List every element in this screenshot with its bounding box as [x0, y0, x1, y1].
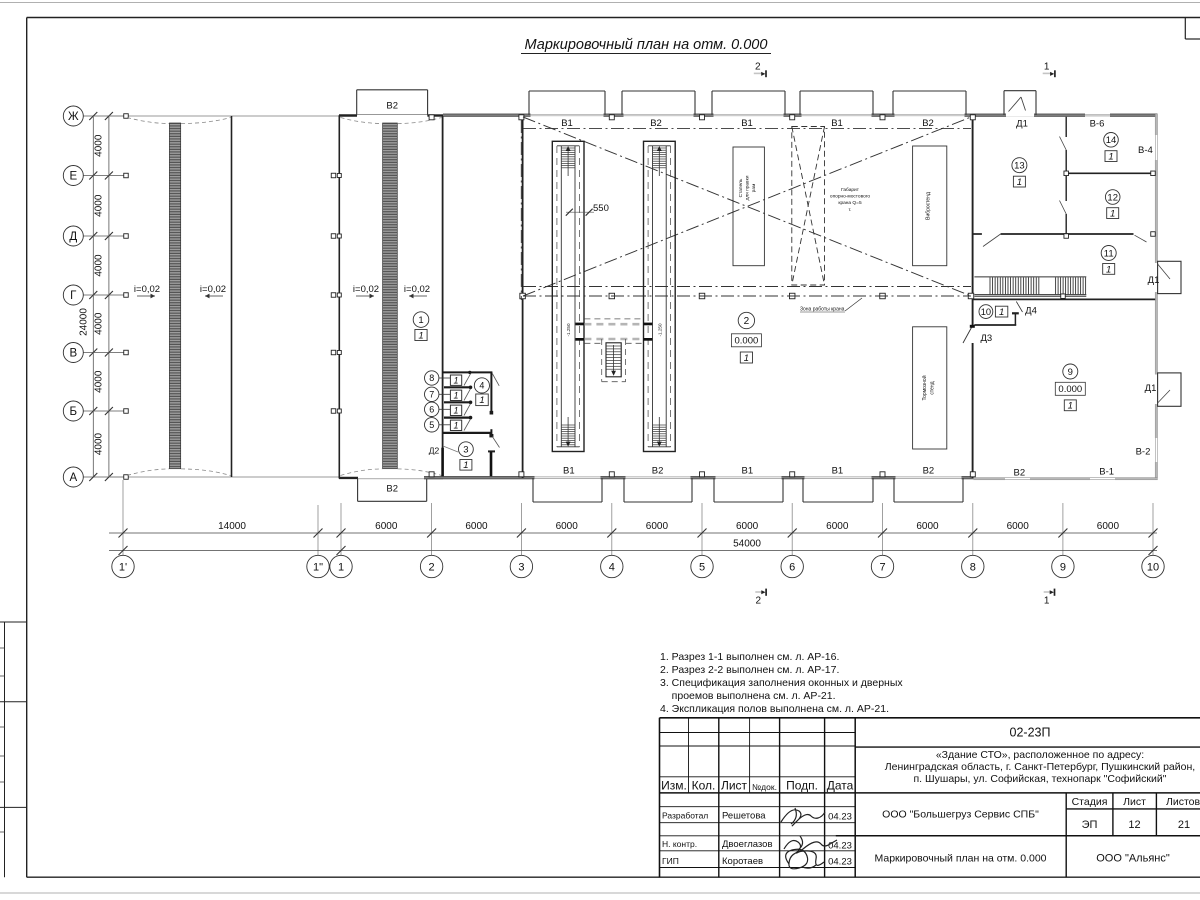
svg-text:Двоеглазов: Двоеглазов [722, 839, 773, 850]
svg-text:-1.250: -1.250 [566, 323, 571, 336]
svg-text:i=0,02: i=0,02 [200, 284, 226, 295]
svg-text:Е: Е [69, 171, 77, 183]
svg-text:2. Разрез 2-2 выполнен см. л.: 2. Разрез 2-2 выполнен см. л. АР-17. [660, 664, 839, 676]
svg-text:6000: 6000 [1007, 521, 1030, 532]
svg-text:Г: Г [70, 290, 77, 302]
svg-text:В-6: В-6 [1090, 118, 1105, 129]
svg-text:1: 1 [744, 353, 749, 364]
svg-text:В2: В2 [650, 118, 662, 129]
svg-text:Разработал: Разработал [662, 811, 708, 821]
svg-text:1: 1 [1044, 62, 1050, 73]
svg-text:11: 11 [1104, 248, 1114, 259]
svg-text:6000: 6000 [646, 521, 669, 532]
svg-text:стенд: стенд [930, 381, 936, 394]
svg-text:В1: В1 [561, 118, 573, 129]
svg-text:Тормозной: Тормозной [921, 375, 928, 400]
svg-text:1: 1 [463, 460, 468, 471]
svg-text:5: 5 [429, 420, 434, 430]
svg-text:10: 10 [981, 307, 991, 317]
svg-text:Зона работы крана: Зона работы крана [800, 307, 845, 313]
svg-text:1: 1 [453, 406, 458, 416]
svg-text:Маркировочный план на отм. 0.0: Маркировочный план на отм. 0.000 [525, 37, 768, 53]
svg-text:Стапель: Стапель [738, 178, 744, 197]
svg-text:12: 12 [1107, 192, 1118, 203]
svg-text:6000: 6000 [465, 521, 488, 532]
svg-text:Д2: Д2 [429, 446, 440, 456]
svg-text:4000: 4000 [94, 254, 105, 277]
svg-text:Коротаев: Коротаев [722, 856, 763, 867]
svg-text:В1: В1 [563, 466, 575, 477]
svg-text:7: 7 [429, 389, 434, 399]
svg-text:1: 1 [479, 395, 484, 406]
svg-text:6: 6 [789, 561, 795, 573]
svg-text:5: 5 [699, 561, 705, 573]
svg-text:2: 2 [756, 596, 762, 607]
svg-text:Кол.: Кол. [692, 779, 716, 793]
svg-text:1: 1 [1110, 209, 1115, 220]
svg-text:04.23: 04.23 [828, 841, 852, 852]
svg-text:4000: 4000 [94, 134, 105, 157]
svg-text:4000: 4000 [94, 312, 105, 335]
svg-text:В2: В2 [1013, 467, 1025, 478]
svg-text:т.: т. [849, 208, 852, 213]
svg-text:9: 9 [1068, 367, 1073, 378]
svg-text:24000: 24000 [79, 308, 90, 336]
svg-text:В1: В1 [741, 118, 753, 129]
svg-text:10: 10 [1147, 561, 1159, 573]
svg-text:1: 1 [453, 421, 458, 431]
svg-text:4000: 4000 [94, 370, 105, 393]
svg-text:6000: 6000 [916, 521, 939, 532]
svg-text:6000: 6000 [736, 521, 759, 532]
svg-text:п. Шушары, ул. Софийская, техн: п. Шушары, ул. Софийская, технопарк "Соф… [914, 773, 1167, 785]
svg-text:1: 1 [1068, 401, 1073, 412]
svg-text:1: 1 [453, 391, 458, 401]
svg-text:i=0,02: i=0,02 [353, 284, 379, 295]
svg-text:Габарит: Габарит [841, 187, 860, 193]
svg-text:i=0,02: i=0,02 [404, 284, 430, 295]
svg-text:ООО "Большегруз Сервис СПБ": ООО "Большегруз Сервис СПБ" [882, 809, 1039, 821]
svg-text:4000: 4000 [94, 194, 105, 217]
svg-text:Листов: Листов [1166, 796, 1200, 808]
svg-text:1: 1 [1044, 596, 1050, 607]
svg-text:Изм.: Изм. [661, 779, 687, 793]
svg-text:4: 4 [609, 561, 615, 573]
svg-text:13: 13 [1014, 161, 1025, 172]
svg-text:В1: В1 [831, 118, 843, 129]
svg-text:9: 9 [1060, 561, 1066, 573]
svg-text:1: 1 [418, 330, 423, 341]
svg-text:1": 1" [313, 561, 323, 573]
svg-text:В: В [69, 348, 77, 360]
svg-text:для правки: для правки [746, 175, 751, 200]
svg-text:2: 2 [755, 62, 761, 73]
svg-text:В2: В2 [923, 466, 935, 477]
svg-text:Лист: Лист [1123, 796, 1146, 808]
svg-text:В2: В2 [386, 484, 398, 495]
svg-text:Д1: Д1 [1145, 383, 1157, 394]
svg-text:В2: В2 [386, 101, 398, 112]
svg-text:В-1: В-1 [1099, 466, 1114, 477]
svg-text:Д1: Д1 [1148, 275, 1160, 286]
svg-text:Маркировочный план на отм. 0.0: Маркировочный план на отм. 0.000 [874, 853, 1046, 865]
svg-text:4: 4 [479, 381, 484, 391]
svg-text:Д1: Д1 [1016, 119, 1028, 130]
svg-text:8: 8 [429, 373, 434, 383]
svg-text:В1: В1 [832, 466, 844, 477]
svg-text:6000: 6000 [826, 521, 849, 532]
svg-text:Решетова: Решетова [722, 811, 766, 822]
svg-text:3: 3 [463, 445, 468, 456]
svg-text:Ж: Ж [68, 111, 79, 123]
svg-text:крана Q=5: крана Q=5 [838, 200, 862, 206]
svg-text:опорно-мостового: опорно-мостового [830, 195, 870, 200]
svg-text:1: 1 [999, 307, 1004, 318]
svg-text:1: 1 [453, 376, 458, 386]
svg-text:ООО "Альянс": ООО "Альянс" [1096, 853, 1170, 865]
svg-text:6000: 6000 [556, 521, 579, 532]
svg-text:-1.250: -1.250 [657, 323, 662, 336]
svg-text:1: 1 [1017, 177, 1022, 188]
svg-text:8: 8 [970, 561, 976, 573]
svg-text:А: А [69, 472, 77, 484]
svg-text:Д4: Д4 [1025, 306, 1037, 317]
svg-text:Н. контр.: Н. контр. [662, 839, 697, 849]
svg-text:Вибростенд: Вибростенд [926, 192, 932, 220]
svg-text:В2: В2 [652, 466, 664, 477]
svg-text:Д3: Д3 [981, 333, 993, 344]
svg-text:1: 1 [418, 315, 423, 326]
svg-text:ГИП: ГИП [662, 856, 679, 866]
svg-text:2: 2 [744, 316, 750, 327]
svg-text:21: 21 [1178, 819, 1190, 831]
svg-text:4000: 4000 [94, 432, 105, 455]
svg-text:0.000: 0.000 [1058, 384, 1082, 395]
svg-text:«Здание СТО», расположенное по: «Здание СТО», расположенное по адресу: [936, 749, 1144, 761]
svg-text:6: 6 [429, 404, 434, 414]
svg-text:ЭП: ЭП [1082, 819, 1098, 831]
svg-text:В-2: В-2 [1136, 446, 1151, 457]
svg-text:Ленинградская область, г. Санк: Ленинградская область, г. Санкт-Петербур… [885, 761, 1195, 773]
svg-text:1. Разрез 1-1 выполнен см. л.: 1. Разрез 1-1 выполнен см. л. АР-16. [660, 651, 839, 663]
svg-text:1: 1 [1106, 264, 1111, 275]
svg-text:В1: В1 [741, 466, 753, 477]
svg-text:14: 14 [1106, 135, 1117, 146]
svg-text:0.000: 0.000 [735, 336, 759, 347]
svg-text:550: 550 [593, 203, 609, 214]
svg-text:4. Экспликация полов выполнена: 4. Экспликация полов выполнена см. л. АР… [660, 703, 889, 715]
svg-text:02-23П: 02-23П [1010, 726, 1051, 740]
svg-text:1': 1' [119, 561, 127, 573]
svg-text:3: 3 [518, 561, 524, 573]
svg-text:Лист: Лист [721, 779, 748, 793]
svg-text:№док.: №док. [752, 782, 777, 792]
svg-text:Дата: Дата [827, 779, 854, 793]
svg-text:рам: рам [752, 184, 757, 193]
svg-text:i=0,02: i=0,02 [134, 284, 160, 295]
svg-text:12: 12 [1128, 819, 1140, 831]
svg-text:Б: Б [70, 406, 78, 418]
svg-text:1: 1 [338, 561, 344, 573]
svg-text:6000: 6000 [1097, 521, 1120, 532]
svg-text:2: 2 [429, 561, 435, 573]
svg-text:В-4: В-4 [1138, 145, 1153, 156]
svg-text:04.23: 04.23 [828, 812, 852, 823]
svg-text:Стадия: Стадия [1072, 796, 1108, 808]
svg-text:1: 1 [1108, 152, 1113, 163]
svg-text:проемов выполнена см. л. АР-21: проемов выполнена см. л. АР-21. [660, 690, 836, 702]
svg-text:3. Спецификация заполнения око: 3. Спецификация заполнения оконных и две… [660, 677, 903, 689]
svg-text:04.23: 04.23 [828, 857, 852, 868]
svg-text:Подп.: Подп. [786, 779, 818, 793]
svg-text:6000: 6000 [375, 521, 398, 532]
svg-text:14000: 14000 [218, 521, 246, 532]
svg-text:54000: 54000 [733, 539, 761, 550]
svg-text:Д: Д [69, 231, 77, 243]
svg-text:7: 7 [879, 561, 885, 573]
svg-text:В2: В2 [922, 118, 934, 129]
